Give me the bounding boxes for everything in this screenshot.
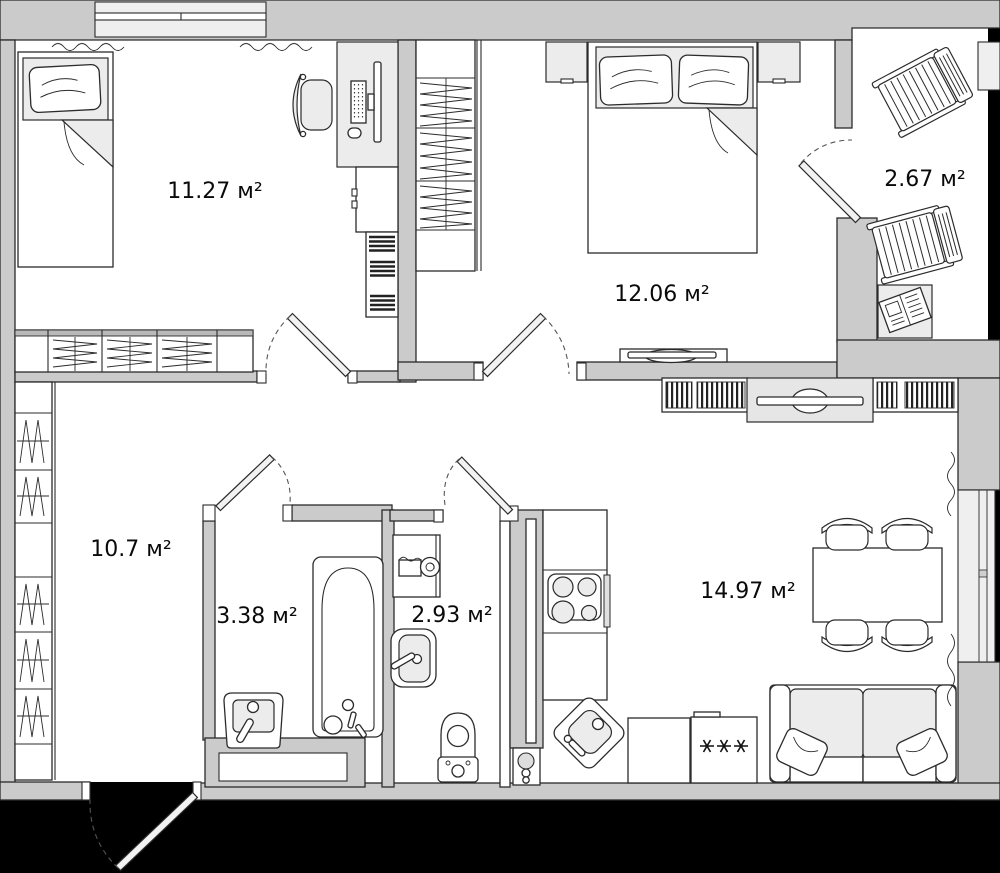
- bedroom1-area-label: 11.27 м²: [167, 179, 262, 204]
- bathroom-bottom-niche: [219, 753, 347, 781]
- wardrobe-hanging-icon: [15, 382, 55, 780]
- dining-chair-icon: [822, 519, 872, 551]
- washbasin-icon: [224, 693, 283, 748]
- wall-between-bedrooms: [398, 40, 416, 382]
- pillow-icon: [678, 55, 749, 105]
- toilet-icon: [438, 713, 478, 782]
- left-wall: [0, 40, 15, 787]
- wc-area-label: 2.93 м²: [411, 603, 492, 628]
- bedroom2-right-wall: [835, 40, 852, 128]
- mouse-icon: [348, 128, 361, 138]
- living-window: [958, 490, 995, 662]
- dining-chair-icon: [882, 519, 932, 551]
- sofa-icon: [770, 685, 956, 782]
- pillow-icon: [599, 55, 673, 105]
- freezer-stars-icon: [691, 712, 757, 783]
- washing-machine-icon: [393, 535, 440, 597]
- dining-chair-icon: [882, 620, 932, 652]
- balcony-pillar: [978, 42, 1000, 90]
- tv-icon: [620, 349, 727, 363]
- utility-shaft-duct: [526, 519, 536, 743]
- balcony-partition-wall: [837, 218, 877, 342]
- bottom-left-wall: [0, 782, 90, 800]
- hallway-area-label: 10.7 м²: [90, 537, 171, 562]
- desk-cabinet: [356, 167, 398, 232]
- wardrobe-hanging-icon: [416, 40, 481, 271]
- hall-t-wall: [398, 362, 483, 380]
- living-right-wall-lower: [958, 662, 1000, 800]
- kitchen-cabinet: [628, 718, 690, 783]
- washbasin-icon: [390, 629, 436, 687]
- nightstand-icon: [758, 42, 800, 82]
- bedroom2-area-label: 12.06 м²: [614, 282, 709, 307]
- balcony-bottom-wall: [837, 340, 1000, 378]
- nightstand-icon: [546, 42, 587, 82]
- pillow-icon: [29, 64, 101, 113]
- bathroom-left-wall: [203, 521, 215, 740]
- dining-chair-icon: [822, 620, 872, 652]
- balcony-area-label: 2.67 м²: [884, 167, 965, 192]
- bathroom-area-label: 3.38 м²: [216, 604, 297, 629]
- chest-of-drawers-icon: [15, 330, 253, 372]
- bookshelf-icon: [366, 232, 398, 317]
- floor-plan: 11.27 м² 12.06 м² 2.67 м² 10.7 м² 3.38 м…: [0, 0, 1000, 873]
- living-right-wall-upper: [958, 378, 1000, 490]
- window-latch: [979, 570, 987, 577]
- entrance-opening: [85, 782, 198, 800]
- bathtub-icon: [313, 557, 383, 738]
- dining-table-icon: [813, 548, 942, 622]
- monitor-icon: [374, 62, 381, 142]
- monitor-stand: [368, 94, 374, 110]
- kitchen-living-area-label: 14.97 м²: [700, 579, 795, 604]
- bedroom2-bottom-wall: [577, 362, 837, 380]
- utility-meters-icon: [513, 748, 540, 785]
- wc-right-wall: [500, 521, 510, 787]
- bathroom-top-wall: [292, 505, 392, 521]
- room-hallway: [15, 382, 55, 780]
